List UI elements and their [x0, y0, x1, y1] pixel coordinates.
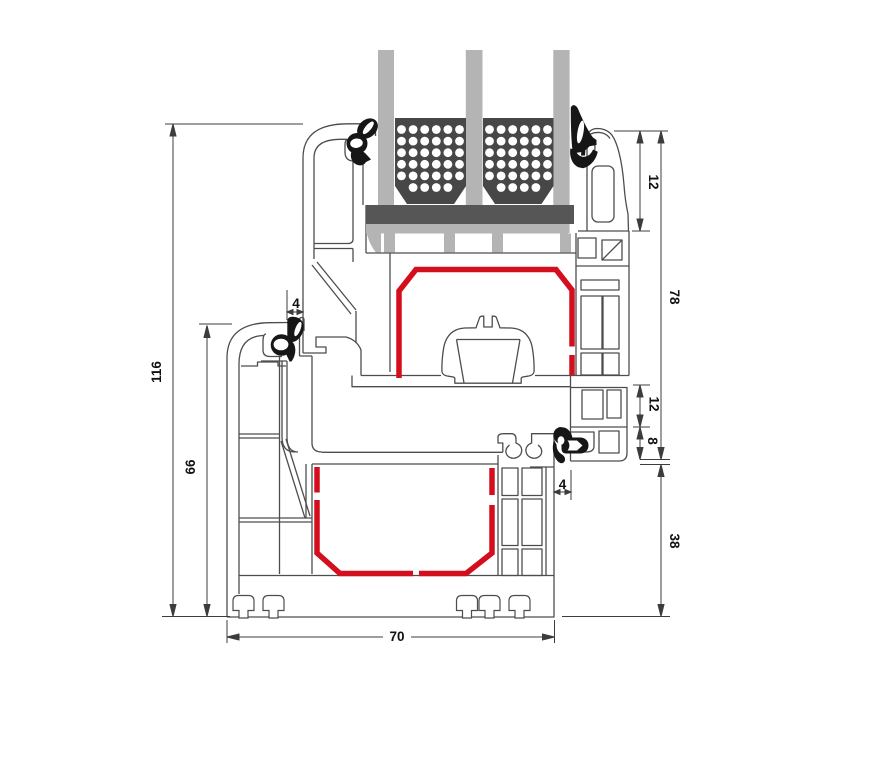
svg-text:78: 78 — [667, 289, 682, 305]
svg-text:66: 66 — [183, 459, 198, 475]
svg-text:4: 4 — [559, 477, 567, 492]
svg-text:116: 116 — [149, 361, 164, 383]
svg-text:4: 4 — [292, 296, 300, 311]
svg-text:12: 12 — [646, 174, 661, 189]
svg-text:70: 70 — [389, 629, 404, 644]
svg-text:8: 8 — [645, 437, 660, 445]
svg-text:38: 38 — [667, 533, 682, 549]
svg-text:12: 12 — [647, 396, 662, 411]
